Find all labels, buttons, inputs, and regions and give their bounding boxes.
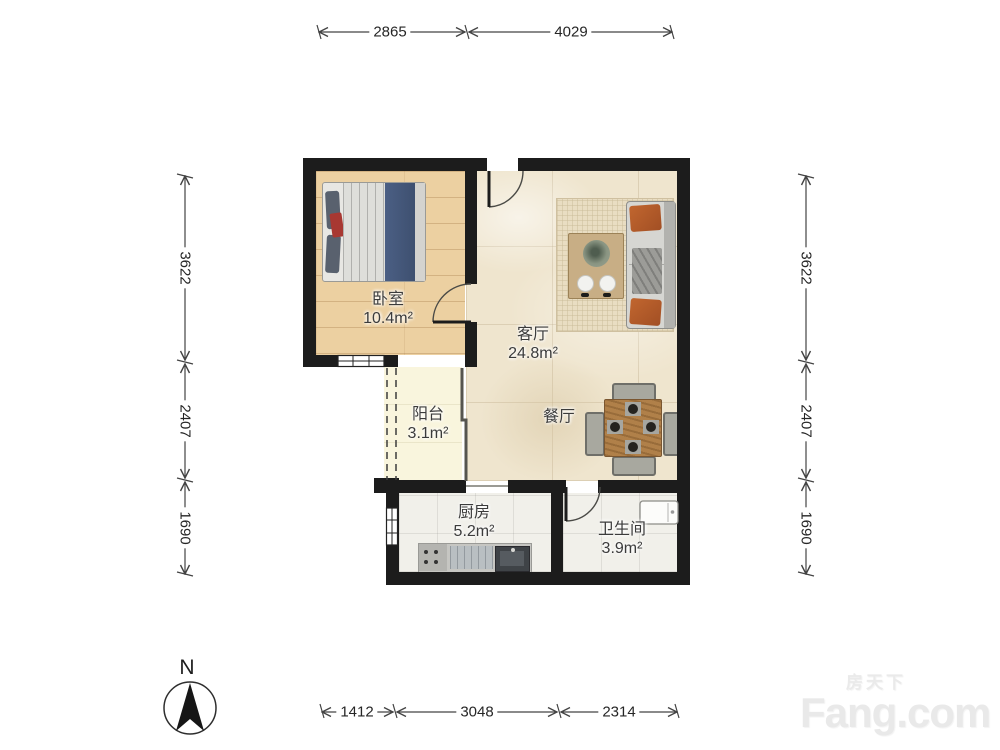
bed-blanket [385,183,415,281]
room-label-bedroom: 卧室 10.4m² [363,290,413,328]
wall [551,493,563,572]
room-name: 餐厅 [543,408,575,427]
sofa-pillow [629,298,662,326]
sofa [626,201,676,329]
dim-bottom-2: 3048 [456,704,497,721]
bowl [599,275,616,292]
room-label-living: 客厅 24.8m² [508,325,558,363]
wall [465,158,477,284]
bed-duvet [343,183,385,281]
wall [508,480,566,493]
dim-top-2: 4029 [550,24,591,41]
sofa-pillow [629,204,662,232]
room-area: 3.9m² [598,539,646,558]
dim-bottom-3: 2314 [598,704,639,721]
room-name: 阳台 [408,405,449,424]
room-label-balcony: 阳台 3.1m² [408,405,449,443]
bed-pillow [325,235,341,274]
room-area: 5.2m² [454,522,495,541]
north-label: N [179,656,194,680]
bed [322,182,426,282]
room-area: 3.1m² [408,424,449,443]
table-item [581,293,589,297]
room-area: 10.4m² [363,309,413,328]
dining-table [604,399,662,457]
plant [583,240,610,267]
room-name: 卫生间 [598,520,646,539]
room-label-bathroom: 卫生间 3.9m² [598,520,646,558]
sofa-backrest [664,202,675,328]
watermark: 房天下 Fang.com [800,668,990,733]
floor-plan-canvas: 卧室 10.4m² 客厅 24.8m² 餐厅 阳台 3.1m² 厨房 5.2m²… [0,0,1000,750]
room-label-dining: 餐厅 [543,408,575,427]
dim-right-2: 2407 [798,400,815,441]
wall [518,158,690,171]
coffee-table [568,233,624,299]
sofa-throw [632,248,662,294]
kitchen-counter [418,543,532,574]
counter-module [450,546,493,569]
dim-top-1: 2865 [369,24,410,41]
wall [303,158,487,171]
table-item [603,293,611,297]
bedroom-window [338,356,384,367]
room-name: 厨房 [454,503,495,522]
sink [495,546,530,572]
dim-left-1: 3622 [177,247,194,288]
wall [677,158,690,585]
dim-bottom-1: 1412 [336,704,377,721]
room-label-kitchen: 厨房 5.2m² [454,503,495,541]
compass-circle [164,682,216,734]
dim-left-2: 2407 [177,400,194,441]
compass-needle [176,683,204,731]
dim-right-3: 1690 [798,507,815,548]
bed-foot [415,183,425,281]
room-area: 24.8m² [508,344,558,363]
place-setting [643,420,659,434]
wall [303,158,316,367]
dining-chair [612,456,656,476]
wall [465,322,477,367]
wall [382,355,398,367]
wall [303,355,338,367]
dim-left-3: 1690 [177,507,194,548]
wall [386,480,399,585]
place-setting [607,420,623,434]
wall [598,480,690,493]
room-name: 卧室 [363,290,413,309]
place-setting [625,402,641,416]
dining-chair [585,412,605,456]
place-setting [625,440,641,454]
wall [386,572,690,585]
north-arrow [164,682,216,734]
stove [419,544,447,571]
watermark-logo: Fang.com [800,693,990,733]
bowl [577,275,594,292]
wall [374,478,399,493]
room-name: 客厅 [508,325,558,344]
dim-right-1: 3622 [798,247,815,288]
